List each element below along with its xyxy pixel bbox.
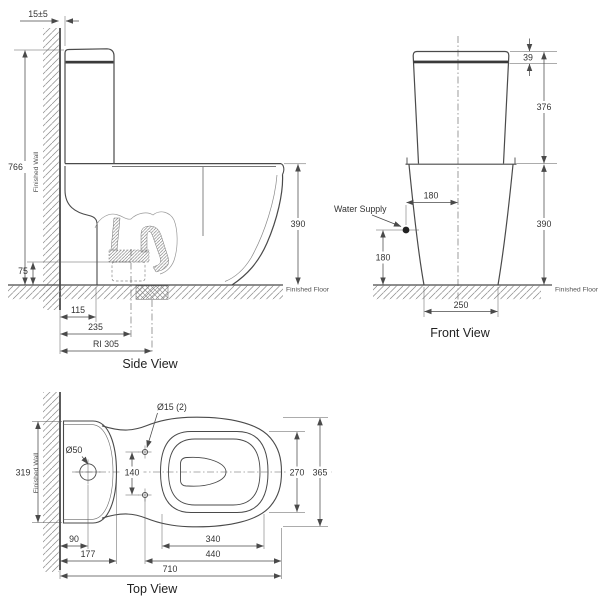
- bolt-hole-leader: [147, 413, 158, 448]
- dim-seat-length: 340: [206, 534, 221, 544]
- dim-bolt-spacing: 140: [125, 468, 140, 478]
- seat-front-lip: [281, 164, 284, 175]
- dim-trap-height: 75: [18, 266, 28, 276]
- floor-hatch-side: [8, 286, 283, 300]
- tank-front-outline: [413, 52, 509, 164]
- technical-drawing-page: Finished Wall 15±5 766 Finished Floor: [0, 0, 600, 600]
- water-supply-leader: [372, 215, 401, 227]
- wall-hatch-top: [43, 392, 59, 572]
- bolt-hole-top-mark: [139, 446, 152, 459]
- pedestal-back-profile: [65, 166, 97, 285]
- finished-wall-label-side: Finished Wall: [33, 151, 40, 192]
- dim-bolt-hole-dia: Ø15 (2): [157, 402, 187, 412]
- dim-tank-depth: 177: [81, 549, 96, 559]
- rim-edges-front: [407, 158, 515, 165]
- dim-tank-width: 319: [16, 468, 31, 478]
- dim-seat-width: 270: [290, 468, 305, 478]
- dim-base-width: 250: [454, 300, 469, 310]
- bowl-front-right-side: [498, 165, 513, 286]
- dim-supply-hole-dia: Ø50: [66, 445, 83, 455]
- dim-supply-height: 180: [376, 253, 391, 263]
- bowl-front-left-side: [409, 165, 424, 286]
- top-view: Finished Wall Ø50 Ø15 (2): [16, 392, 332, 596]
- toilet-dimension-drawing: Finished Wall 15±5 766 Finished Floor: [0, 0, 600, 600]
- supply-hole-leader: [82, 457, 88, 465]
- dim-overall-length: 710: [163, 564, 178, 574]
- outlet-hidden-box: [112, 262, 145, 281]
- dim-rough-in: RI 305: [93, 339, 119, 349]
- tank-lid-seam-front: [414, 61, 509, 64]
- water-supply-label: Water Supply: [334, 204, 387, 214]
- tank-lid-seam-side: [66, 61, 114, 64]
- floor-hatch-front: [373, 286, 541, 300]
- front-view: Finished Floor Water Supply 180 180 39 3…: [334, 36, 599, 340]
- finished-wall-label-top: Finished Wall: [33, 452, 40, 493]
- dim-tank-height: 376: [537, 102, 552, 112]
- wall-hatch-side: [43, 28, 59, 310]
- finished-floor-label-side: Finished Floor: [286, 287, 330, 294]
- side-view: Finished Wall 15±5 766 Finished Floor: [3, 9, 330, 371]
- side-view-title: Side View: [122, 357, 178, 371]
- dim-supply-to-center: 180: [424, 191, 439, 201]
- dim-bolt-to-front: 440: [206, 549, 221, 559]
- dim-wall-to-pedestal: 115: [71, 305, 85, 315]
- tank-side-profile: [65, 49, 114, 164]
- water-supply-dot: [403, 227, 410, 234]
- dim-wall-to-outlet: 235: [88, 322, 103, 332]
- dim-overall-width: 365: [313, 468, 328, 478]
- bowl-inner-profile: [225, 175, 277, 282]
- finished-floor-label-front: Finished Floor: [555, 287, 599, 294]
- dim-bowl-height-side: 390: [291, 219, 306, 229]
- top-view-title: Top View: [127, 582, 178, 596]
- trapway-inlet-hatched: [111, 218, 120, 250]
- dim-wall-gap: 15±5: [28, 9, 48, 19]
- front-view-title: Front View: [430, 326, 490, 340]
- dim-bowl-height-front: 390: [537, 219, 552, 229]
- dim-lid-height: 39: [523, 53, 533, 63]
- dim-wall-to-supply: 90: [69, 534, 79, 544]
- dim-total-height: 766: [8, 162, 23, 172]
